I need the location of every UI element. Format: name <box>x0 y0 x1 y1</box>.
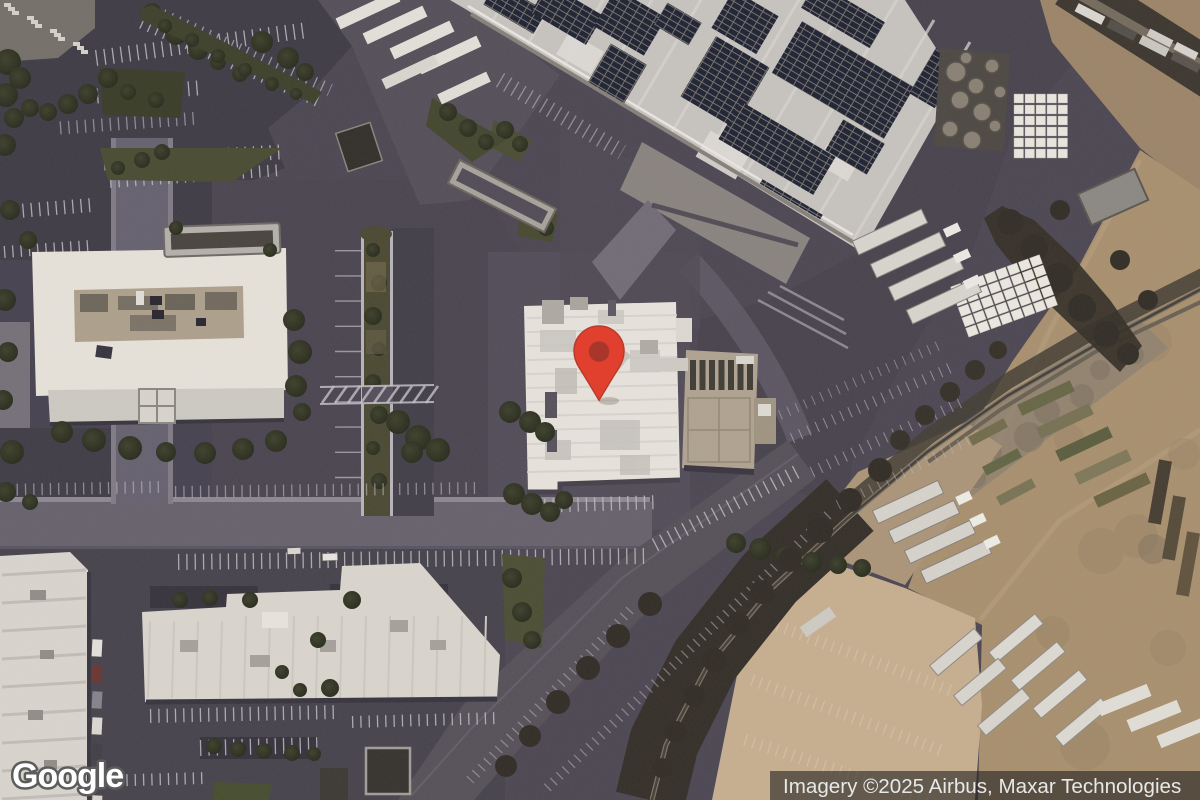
svg-text:Imagery ©2025 Airbus, Maxar Te: Imagery ©2025 Airbus, Maxar Technologies <box>783 775 1181 798</box>
svg-text:Google: Google <box>12 757 123 795</box>
